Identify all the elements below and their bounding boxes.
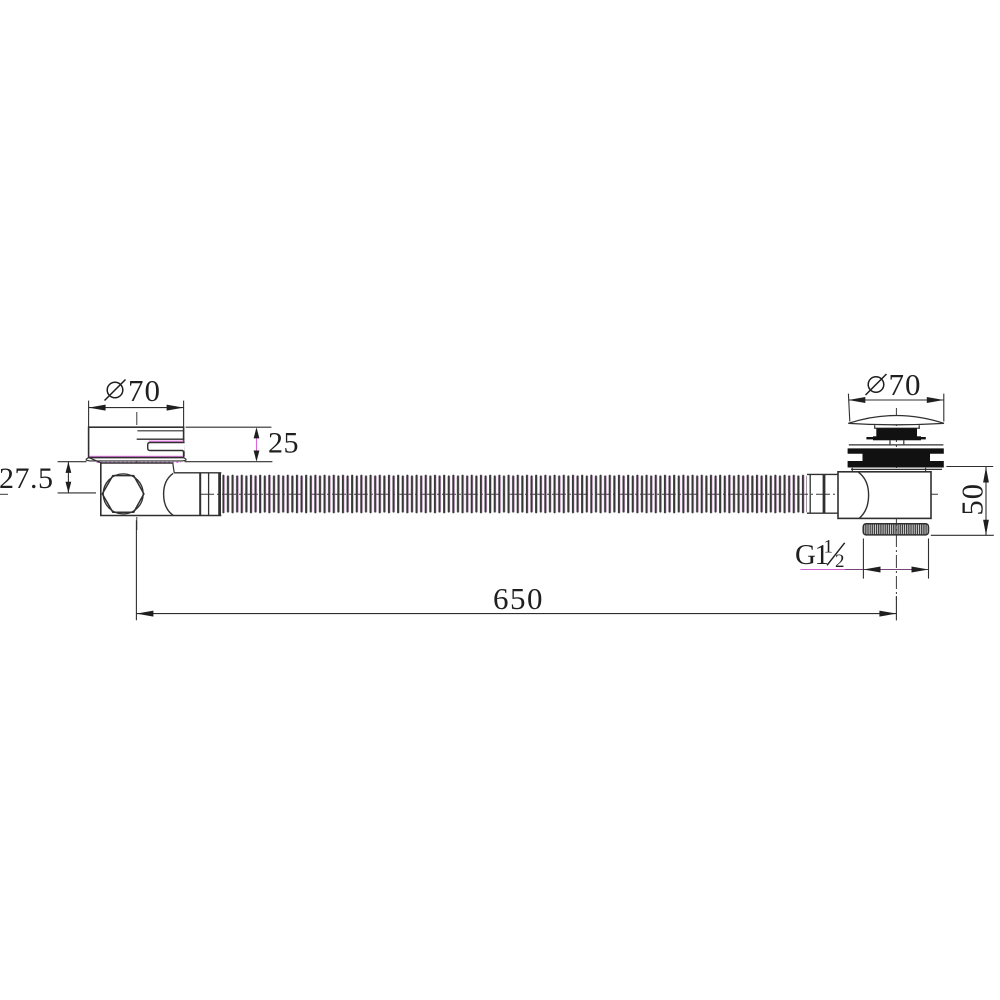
- svg-text:50: 50: [956, 483, 990, 516]
- svg-text:650: 650: [493, 581, 544, 616]
- svg-text:G: G: [795, 539, 816, 571]
- svg-text:25: 25: [268, 427, 299, 460]
- svg-text:70: 70: [889, 367, 922, 402]
- svg-text:1: 1: [824, 537, 834, 558]
- svg-text:70: 70: [128, 373, 161, 408]
- svg-text:2: 2: [835, 551, 845, 572]
- svg-text:27.5: 27.5: [0, 462, 54, 495]
